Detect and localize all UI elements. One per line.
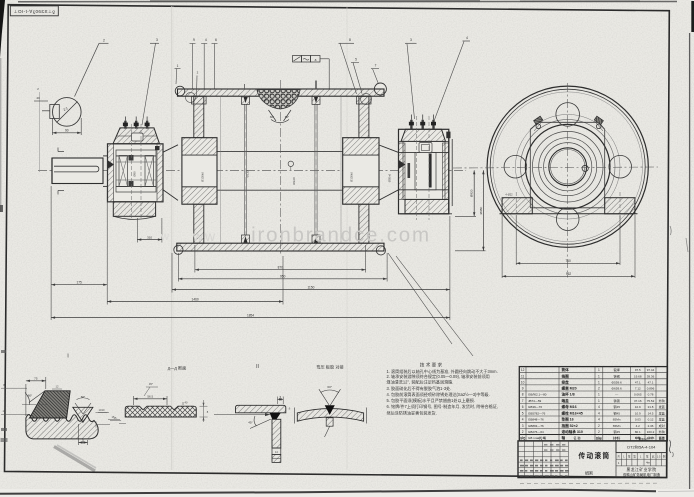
svg-text:Ø130k6: Ø130k6	[201, 172, 205, 182]
svg-text:1: 1	[177, 64, 179, 68]
svg-text:14.5: 14.5	[648, 411, 654, 415]
svg-text:轴: 轴	[562, 435, 566, 440]
svg-text:6. 铭牌/件7上须打印钢号, 图号·制造年月, 发货时,: 6. 铭牌/件7上须打印钢号, 图号·制造年月, 发货时, 附带合格证,	[387, 403, 498, 409]
svg-text:接盘: 接盘	[562, 379, 570, 384]
svg-text:挡圈 52×2: 挡圈 52×2	[562, 423, 578, 428]
svg-text:II: II	[256, 364, 259, 370]
svg-text:2. 轴承安装游隙须符合规定(0.05—0.09), 轴承: 2. 轴承安装游隙须符合规定(0.05—0.09), 轴承安装前须用	[387, 373, 490, 379]
svg-text:80.1: 80.1	[635, 430, 641, 434]
svg-text:共: 共	[617, 455, 620, 459]
svg-text:然后涂防锈油妥善包装发货.: 然后涂防锈油妥善包装发货.	[387, 409, 437, 415]
svg-text:煤油清洗12°, 装配后注足钙基润滑脂.: 煤油清洗12°, 装配后注足钙基润滑脂.	[387, 378, 454, 384]
svg-text:5: 5	[522, 411, 524, 415]
svg-text:Ø320: Ø320	[292, 177, 296, 185]
svg-text:钢45: 钢45	[613, 404, 620, 409]
svg-text:代 号: 代 号	[539, 435, 546, 440]
svg-text:0.065: 0.065	[634, 393, 642, 397]
svg-text:发蓝: 发蓝	[659, 417, 665, 422]
svg-text:4: 4	[522, 418, 524, 422]
svg-text:10: 10	[521, 380, 525, 384]
svg-text:760: 760	[565, 259, 571, 263]
svg-text:2.36: 2.36	[648, 424, 654, 428]
svg-text:90: 90	[65, 129, 69, 133]
svg-text:1: 1	[598, 393, 600, 397]
svg-text:DT2Ⅱ05A-4-104: DT2Ⅱ05A-4-104	[627, 445, 656, 450]
svg-text:6: 6	[522, 405, 524, 409]
svg-text:56.5: 56.5	[147, 395, 153, 399]
svg-text:钢45: 钢45	[613, 429, 620, 434]
svg-text:2: 2	[598, 424, 600, 428]
svg-text:Φ559.6: Φ559.6	[612, 380, 622, 384]
svg-text:950: 950	[280, 275, 286, 279]
svg-text:Ø90: Ø90	[133, 171, 137, 177]
svg-text:Ø130k6: Ø130k6	[350, 172, 354, 182]
svg-text:Ø820: Ø820	[470, 189, 474, 197]
svg-text:1150: 1150	[308, 285, 315, 289]
svg-text:材 料: 材 料	[613, 435, 621, 440]
svg-text:8: 8	[522, 393, 524, 397]
svg-text:ironbrandce.com: ironbrandce.com	[251, 224, 431, 247]
svg-text:挡圈: 挡圈	[562, 373, 570, 378]
svg-text:铸钢: 铸钢	[614, 373, 620, 378]
svg-text:1. 滚筒组装后以轴孔中心线为基准, 外圆径向跳动不大于3: 1. 滚筒组装后以轴孔中心线为基准, 外圆径向跳动不大于3mm.	[387, 368, 498, 374]
svg-text:65Mn: 65Mn	[613, 418, 621, 422]
svg-text:GB848—76: GB848—76	[528, 418, 544, 422]
svg-text:GB39—76: GB39—76	[528, 405, 542, 409]
svg-text:д—д 断面: д—д 断面	[168, 365, 187, 372]
svg-text:外购: 外购	[659, 398, 665, 403]
svg-text:垫圈 16: 垫圈 16	[562, 417, 574, 422]
svg-text:Ø: Ø	[37, 87, 39, 91]
svg-text:5: 5	[355, 57, 357, 61]
svg-text:2: 2	[598, 430, 600, 434]
svg-text:锻焊: 锻焊	[614, 367, 620, 372]
svg-text:8: 8	[349, 38, 351, 42]
svg-text:19.68: 19.68	[634, 374, 642, 378]
svg-text:1854: 1854	[247, 313, 254, 317]
svg-text:螺栓 M16×45: 螺栓 M16×45	[562, 410, 583, 415]
svg-text:外购: 外购	[659, 429, 665, 434]
svg-text:870: 870	[278, 266, 284, 270]
svg-text:7: 7	[522, 399, 524, 403]
svg-text:张: 张	[646, 455, 649, 459]
svg-text:螺母 M16: 螺母 M16	[562, 404, 577, 409]
svg-text:w: w	[160, 231, 169, 243]
svg-text:滚动轴承 310: 滚动轴承 310	[562, 429, 583, 434]
svg-text:3: 3	[522, 424, 524, 428]
svg-text:3. 胶面硫化后不得有脱胶气泡1-3处.: 3. 胶面硫化后不得有脱胶气泡1-3处.	[387, 385, 452, 391]
svg-text:37.16: 37.16	[634, 399, 642, 403]
svg-text:4: 4	[466, 36, 468, 40]
svg-text:0.12: 0.12	[648, 418, 654, 422]
svg-text:75.52: 75.52	[647, 399, 655, 403]
svg-text:4кг: 4кг	[646, 461, 650, 465]
svg-text:Ø95n6: Ø95n6	[388, 173, 392, 182]
svg-text:ww: ww	[192, 228, 217, 244]
svg-text:GB893—76: GB893—76	[528, 424, 544, 428]
svg-text:黑龙江矿业学院: 黑龙江矿业学院	[626, 467, 656, 472]
svg-text:螺塞 M20: 螺塞 M20	[562, 385, 577, 390]
svg-text:1460: 1460	[192, 297, 199, 301]
svg-text:175: 175	[76, 281, 82, 285]
svg-text:2: 2	[598, 386, 600, 390]
svg-text:发蓝: 发蓝	[659, 410, 665, 415]
svg-text:GB276—64: GB276—64	[528, 430, 544, 434]
svg-text:Φ659.6: Φ659.6	[612, 386, 622, 390]
svg-text:60°: 60°	[270, 115, 275, 119]
svg-text:1: 1	[598, 368, 600, 372]
svg-text:1:5: 1:5	[657, 455, 661, 459]
svg-text:Ø950: Ø950	[479, 206, 483, 214]
svg-text:4. 包胶前滚筒表面须经喷砂除锈处理达(Sa2½—3)中等: 4. 包胶前滚筒表面须经喷砂除锈处理达(Sa2½—3)中等级.	[387, 391, 490, 397]
svg-text:GBЛ62.1—80: GBЛ62.1—80	[528, 393, 547, 397]
svg-text:a: a	[315, 58, 317, 62]
svg-text:310: 310	[147, 235, 152, 239]
svg-text:1: 1	[598, 399, 600, 403]
svg-text:12: 12	[521, 368, 525, 372]
svg-text:3: 3	[156, 38, 158, 42]
svg-text:97.5: 97.5	[635, 368, 641, 372]
svg-text:备注: 备注	[659, 435, 665, 440]
svg-text:例: 例	[663, 455, 666, 459]
svg-text:4: 4	[598, 411, 600, 415]
svg-text:962: 962	[566, 272, 572, 276]
svg-text:GB5782—76: GB5782—76	[528, 411, 546, 415]
svg-text:7: 7	[375, 64, 377, 68]
svg-text:60°: 60°	[28, 394, 33, 398]
svg-text:39.36: 39.36	[647, 374, 655, 378]
svg-text:成对: 成对	[659, 423, 665, 428]
svg-text:75: 75	[34, 377, 38, 381]
svg-text:钢45: 钢45	[613, 410, 620, 415]
svg-text:4.2: 4.2	[636, 424, 641, 428]
svg-text:筒体: 筒体	[562, 367, 570, 372]
svg-text:油杯 1/8: 油杯 1/8	[562, 392, 575, 397]
svg-text:9: 9	[522, 386, 524, 390]
svg-text:技 术 要 求: 技 术 要 求	[420, 362, 443, 369]
svg-text:60°: 60°	[285, 115, 290, 119]
svg-text:45°: 45°	[149, 382, 153, 386]
svg-text:40: 40	[36, 96, 40, 100]
svg-text:0.896: 0.896	[647, 386, 655, 390]
svg-text:4: 4	[598, 418, 600, 422]
svg-text:Ø110: Ø110	[246, 170, 250, 177]
svg-text:2: 2	[103, 38, 105, 42]
svg-text:序号: 序号	[520, 435, 526, 440]
svg-text:47.1: 47.1	[635, 380, 641, 384]
svg-text:JB74—59: JB74—59	[528, 399, 542, 403]
svg-text:比: 比	[652, 455, 655, 459]
svg-text:名 称: 名 称	[573, 435, 581, 440]
svg-text:160.2: 160.2	[647, 430, 655, 434]
svg-text:10.9: 10.9	[635, 405, 641, 409]
svg-text:3: 3	[410, 38, 412, 42]
svg-text:2: 2	[522, 430, 524, 434]
svg-text:5. 包胶平面须(模板)水平且严禁翘曲1处以上磨损.: 5. 包胶平面须(模板)水平且严禁翘曲1处以上磨损.	[387, 397, 475, 403]
svg-text:第: 第	[633, 455, 636, 459]
svg-text:10.9: 10.9	[635, 411, 641, 415]
svg-text:双鸭山矿务局机电厂制造: 双鸭山矿务局机电厂制造	[623, 472, 661, 477]
svg-text:60°: 60°	[327, 385, 332, 389]
svg-text:97.44: 97.44	[647, 368, 655, 372]
svg-text:传动滚筒: 传动滚筒	[578, 451, 611, 460]
svg-text:60°: 60°	[81, 395, 86, 399]
svg-text:7.12: 7.12	[635, 386, 641, 390]
svg-text:0.78: 0.78	[648, 393, 654, 397]
svg-text:⊥OI-t-∀ϛ06ƐƧ⊥ƍ: ⊥OI-t-∀ϛ06ƐƧ⊥ƍ	[14, 9, 56, 14]
svg-text:1: 1	[598, 380, 600, 384]
svg-text:弯压 板胶 对接: 弯压 板胶 对接	[316, 364, 344, 371]
svg-text:4: 4	[205, 38, 207, 42]
svg-text:数量: 数量	[596, 435, 602, 440]
svg-text:9: 9	[193, 38, 195, 42]
svg-text:47.1: 47.1	[648, 380, 654, 384]
svg-text:绢割: 绢割	[585, 470, 593, 476]
svg-text:45°: 45°	[248, 421, 253, 425]
svg-text:4-Ø22: 4-Ø22	[505, 193, 513, 197]
svg-text:4: 4	[598, 405, 600, 409]
svg-text:总计: 总计	[648, 436, 654, 440]
svg-text:发蓝: 发蓝	[659, 404, 665, 409]
svg-text:65Mn: 65Mn	[613, 424, 621, 428]
svg-text:6: 6	[215, 38, 217, 42]
svg-text:11: 11	[521, 374, 525, 378]
svg-text:0.03: 0.03	[635, 418, 641, 422]
svg-text:1: 1	[598, 374, 600, 378]
svg-text:张: 张	[628, 455, 631, 459]
svg-text:铸钢: 铸钢	[614, 398, 620, 403]
svg-text:21.8: 21.8	[648, 405, 654, 409]
svg-text:端盖: 端盖	[562, 398, 570, 403]
